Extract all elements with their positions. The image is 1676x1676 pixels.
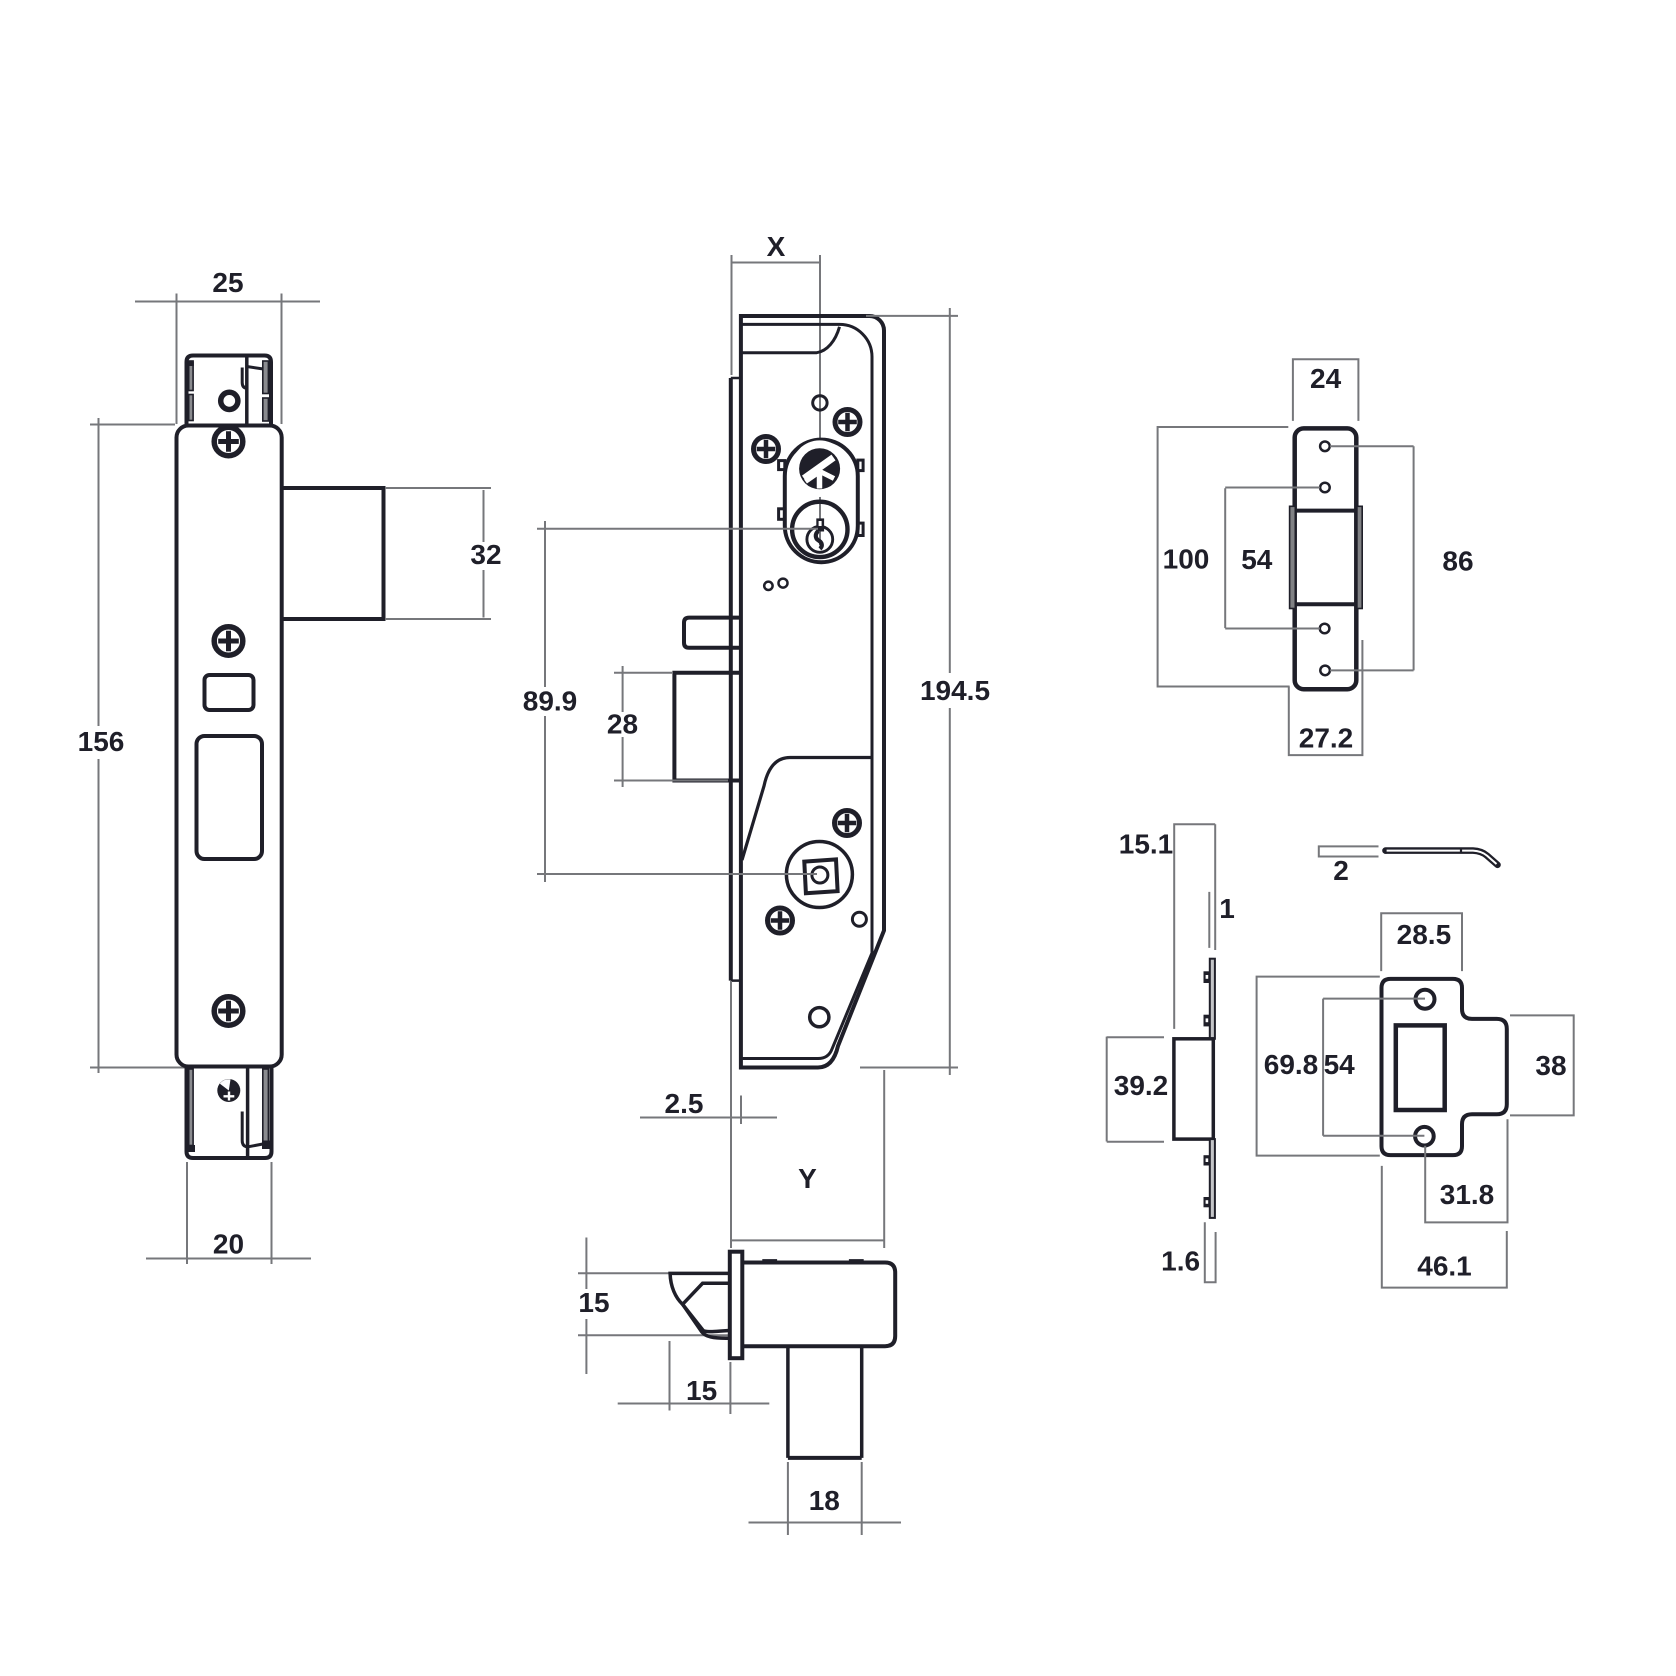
- svg-text:18: 18: [809, 1485, 840, 1516]
- svg-text:39.2: 39.2: [1114, 1070, 1169, 1101]
- svg-text:24: 24: [1310, 363, 1342, 394]
- svg-text:25: 25: [212, 267, 243, 298]
- svg-text:54: 54: [1324, 1049, 1356, 1080]
- svg-text:27.2: 27.2: [1299, 723, 1354, 754]
- svg-text:46.1: 46.1: [1417, 1251, 1472, 1282]
- svg-text:15: 15: [578, 1287, 609, 1318]
- svg-text:89.9: 89.9: [523, 686, 578, 717]
- svg-text:194.5: 194.5: [920, 675, 990, 706]
- svg-text:X: X: [767, 231, 786, 262]
- svg-text:156: 156: [78, 726, 125, 757]
- svg-text:15: 15: [686, 1375, 717, 1406]
- svg-text:38: 38: [1535, 1050, 1566, 1081]
- svg-text:2.5: 2.5: [665, 1088, 704, 1119]
- svg-text:1: 1: [1219, 893, 1235, 924]
- svg-text:54: 54: [1241, 544, 1273, 575]
- svg-text:28.5: 28.5: [1397, 919, 1452, 950]
- svg-text:86: 86: [1442, 546, 1473, 577]
- svg-text:15.1: 15.1: [1119, 829, 1174, 860]
- svg-text:100: 100: [1163, 544, 1210, 575]
- svg-text:32: 32: [470, 539, 501, 570]
- svg-text:Y: Y: [798, 1163, 817, 1194]
- svg-text:69.8: 69.8: [1264, 1049, 1319, 1080]
- svg-text:31.8: 31.8: [1440, 1179, 1495, 1210]
- svg-text:28: 28: [607, 709, 638, 740]
- svg-text:1.6: 1.6: [1161, 1245, 1200, 1276]
- svg-text:20: 20: [213, 1229, 244, 1260]
- svg-text:2: 2: [1333, 855, 1349, 886]
